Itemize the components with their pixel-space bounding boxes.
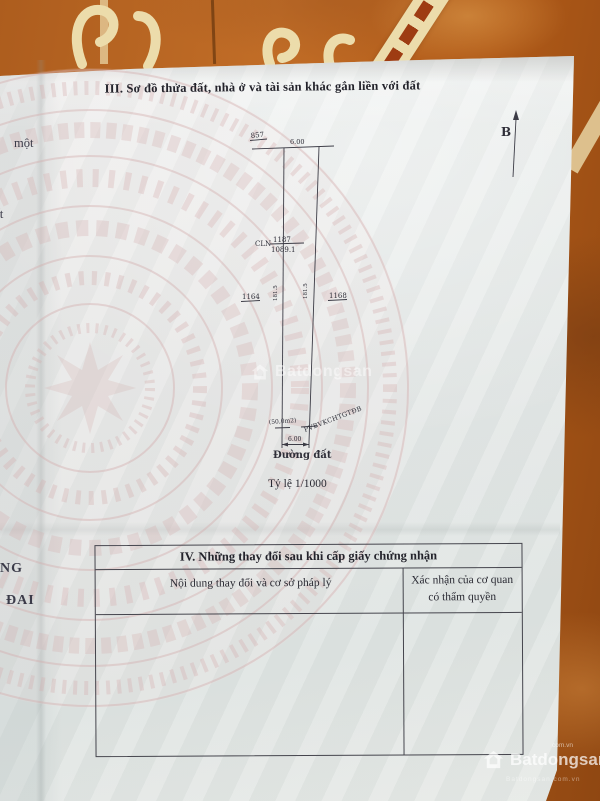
corridor-code-label: PVBVKCHTGTĐB <box>303 404 363 433</box>
table-column-2-header-line1: Xác nhận của cơ quan <box>406 572 519 590</box>
batdongsan-house-icon <box>250 362 270 382</box>
center-watermark-text: Batdongsan <box>275 363 372 381</box>
right-side-length-label: 181.5 <box>303 283 309 299</box>
left-page-fragment-4: ĐAI <box>6 593 35 609</box>
left-page-fragment-1: một <box>14 136 33 151</box>
center-watermark: Batdongsan <box>250 362 372 382</box>
table-body-divider <box>96 612 522 615</box>
table-header-divider <box>96 567 522 570</box>
cadastral-plot-diagram: B 857 6.00 CLN 1187 1089.1 1164 1168 181… <box>230 105 540 475</box>
top-width-label: 6.00 <box>290 138 304 146</box>
corner-watermark-subtext: Batdongsan.com.vn <box>506 776 580 783</box>
corner-watermark-text: Batdongsan <box>510 750 600 770</box>
adjacent-plot-left-label: 1164 <box>242 293 260 301</box>
table-column-1-header: Nội dung thay đổi và cơ sở pháp lý <box>106 577 396 591</box>
left-page-fragment-3: NG <box>0 561 23 577</box>
drum-center-star <box>44 342 136 434</box>
corner-watermark: Batdongsan <box>482 748 600 771</box>
left-side-length-label: 181.5 <box>273 285 279 301</box>
scale-label: Tỷ lệ 1/1000 <box>268 478 327 490</box>
corridor-area-label: (50,0m2) <box>269 417 297 426</box>
section-iv-title: IV. Những thay đổi sau khi cấp giấy chứn… <box>95 548 521 565</box>
road-label: Đường đất <box>273 449 332 461</box>
plot-outline <box>252 146 334 442</box>
table-column-2-header-line2: có thẩm quyền <box>406 589 519 607</box>
section-iv-table: IV. Những thay đổi sau khi cấp giấy chứn… <box>94 543 523 757</box>
north-label: B <box>501 125 511 139</box>
corner-watermark-suffix: com.vn <box>552 742 573 749</box>
table-column-divider <box>403 568 405 755</box>
table-column-2-header: Xác nhận của cơ quan có thẩm quyền <box>406 572 519 607</box>
adjacent-plot-right-label: 1168 <box>329 292 347 300</box>
plot-number-label: 1187 <box>273 236 291 244</box>
plot-area-label: 1089.1 <box>271 246 296 254</box>
left-page-fragment-2: ất <box>0 206 3 222</box>
north-arrow: B <box>501 110 519 177</box>
land-use-code-label: CLN <box>255 240 271 248</box>
batdongsan-house-icon <box>482 748 505 771</box>
adjacent-plot-top-label: 857 <box>250 131 264 140</box>
bottom-width-label: 6.00 <box>288 436 302 443</box>
